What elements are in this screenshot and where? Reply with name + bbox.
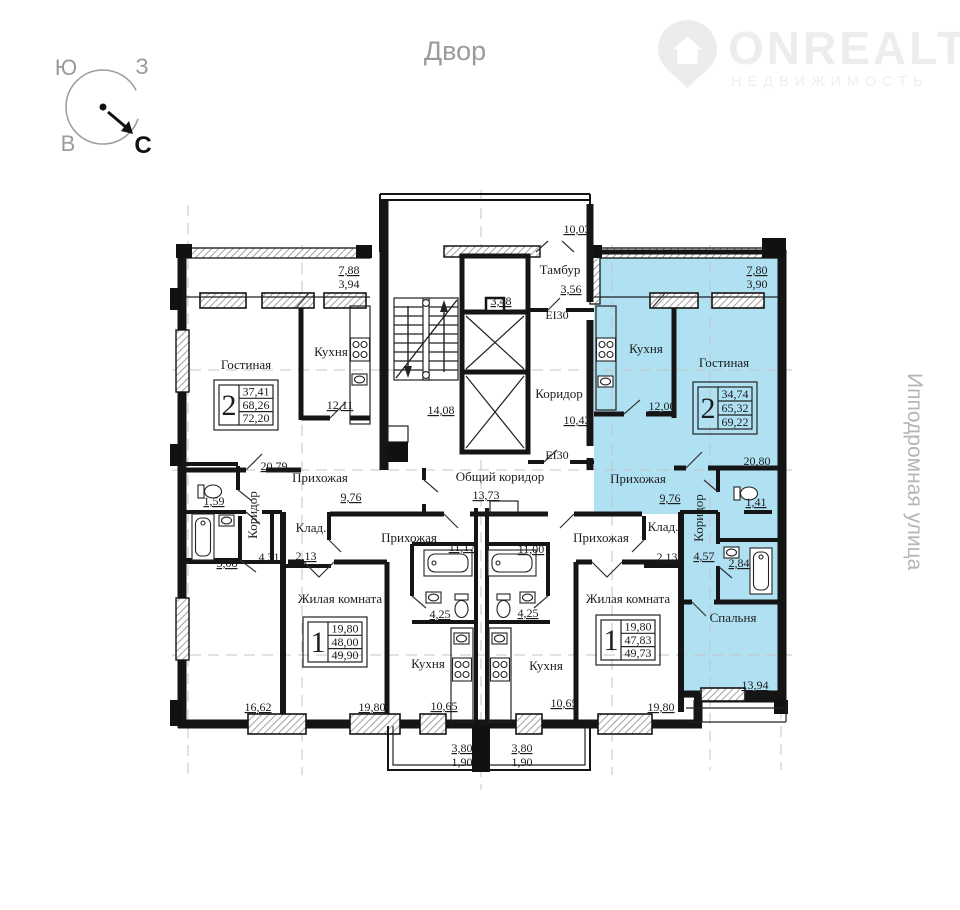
left2-balcony-half: 3,94: [339, 277, 360, 291]
left2-hall-label: Прихожая: [292, 470, 348, 485]
right2-area-total: 69,22: [722, 415, 749, 429]
right1-storage-label: Клад.: [648, 519, 679, 534]
right1-kitchen-dim: 10,65: [551, 696, 578, 710]
tambour-label: Тамбур: [540, 262, 581, 277]
right1-kitchen-label: Кухня: [529, 658, 563, 673]
left1-storage-dim: 2,13: [296, 549, 317, 563]
right1-balcony-full: 3,80: [512, 741, 533, 755]
left1-rooms-count: 1: [311, 626, 326, 659]
left1-area-living: 19,80: [332, 622, 359, 636]
left2-bedroom-dim: 16,62: [245, 700, 272, 714]
left1-hall-label: Прихожая: [381, 530, 437, 545]
right1-area-usable: 47,83: [625, 633, 652, 647]
right2-bedroom-dim: 13,94: [742, 678, 769, 692]
right2-corridor-dim: 4,57: [694, 549, 715, 563]
courtyard-label: Двор: [424, 36, 486, 66]
garbage-chute: [388, 426, 408, 462]
left1-area-total: 49,90: [332, 648, 359, 662]
left2-kitchen-dim: 12,11: [327, 398, 354, 412]
right2-living-dim: 20,80: [744, 454, 771, 468]
right1-balcony-half: 1,90: [512, 755, 533, 769]
left2-area-usable: 68,26: [243, 398, 270, 412]
compass-east: В: [61, 131, 76, 156]
right1-hall-dim: 11,00: [518, 542, 545, 556]
left1-room-label: Жилая комната: [298, 591, 382, 606]
area-table-left2: 2 37,41 68,26 72,20: [214, 380, 278, 430]
street-label: Ипподромная улица: [903, 373, 926, 571]
fire-door-bottom-label: EI30: [545, 448, 568, 462]
left1-kitchen-dim: 10,65: [431, 699, 458, 713]
compass-north: С: [134, 132, 151, 159]
logo-subtitle: НЕДВИЖИМОСТЬ: [731, 74, 929, 90]
right2-hall-label: Прихожая: [610, 471, 666, 486]
left1-room-dim: 19,80: [359, 700, 386, 714]
left1-bath-dim: 4,25: [430, 607, 451, 621]
fire-door-top-label: EI30: [545, 308, 568, 322]
compass: Ю З В С: [55, 54, 152, 159]
stair-hall-dim: 14,08: [428, 403, 455, 417]
left2-area-living: 37,41: [243, 385, 270, 399]
right1-bath-dim: 4,25: [518, 606, 539, 620]
common-corridor-label: Общий коридор: [456, 469, 544, 484]
corridor-dim: 10,43: [564, 413, 591, 427]
compass-south: Ю: [55, 55, 77, 80]
right2-corridor-label: Коридор: [691, 494, 706, 542]
left1-balcony-full: 3,80: [452, 741, 473, 755]
common-corridor-dim: 13,73: [473, 488, 500, 502]
tambour-dim: 3,56: [561, 282, 582, 296]
right1-area-living: 19,80: [625, 620, 652, 634]
left2-corridor-dim: 4,31: [259, 550, 280, 564]
floorplan-page: 2 37,41 68,26 72,20 2 34,74 65,32 69,22 …: [0, 0, 960, 910]
right2-bath-dim: 2,84: [729, 556, 750, 570]
right2-kitchen-label: Кухня: [629, 341, 663, 356]
left2-kitchen-label: Кухня: [314, 344, 348, 359]
right2-wc-dim: 1,41: [746, 495, 767, 509]
compass-west: З: [135, 54, 148, 79]
elevator-shafts: [462, 256, 528, 452]
compass-dot: [100, 104, 107, 111]
left2-corridor-label: Коридор: [245, 491, 260, 539]
logo-pin-icon: [658, 20, 717, 88]
right2-living-label: Гостиная: [699, 355, 749, 370]
right1-rooms-count: 1: [604, 624, 619, 657]
right1-room-label: Жилая комната: [586, 591, 670, 606]
right2-area-living: 34,74: [722, 387, 749, 401]
left2-living-label: Гостиная: [221, 357, 271, 372]
area-table-left1: 1 19,80 48,00 49,90: [303, 617, 367, 667]
logo-brand: ONREALT: [728, 22, 960, 74]
left2-wc-dim: 1,59: [204, 494, 225, 508]
right1-hall-label: Прихожая: [573, 530, 629, 545]
entry-dim: 10,03: [564, 222, 591, 236]
lift-lobby-dim: 3,48: [491, 294, 512, 308]
left2-living-dim: 20,79: [261, 459, 288, 473]
left2-hall-dim: 9,76: [341, 490, 362, 504]
left2-bath-dim: 3,08: [217, 556, 238, 570]
right1-room-dim: 19,80: [648, 700, 675, 714]
compass-arrow: [108, 112, 127, 128]
onrealt-logo: ONREALT НЕДВИЖИМОСТЬ: [658, 20, 960, 90]
left1-storage-label: Клад.: [296, 520, 327, 535]
right2-kitchen-dim: 12,00: [649, 399, 676, 413]
area-table-right1: 1 19,80 47,83 49,73: [596, 615, 660, 665]
right2-bedroom-label: Спальня: [710, 610, 757, 625]
right2-hall-dim: 9,76: [660, 491, 681, 505]
stairs: [394, 298, 458, 380]
right1-area-total: 49,73: [625, 646, 652, 660]
right2-balcony-half: 3,90: [747, 277, 768, 291]
right2-area-usable: 65,32: [722, 401, 749, 415]
right2-balcony-full: 7,80: [747, 263, 768, 277]
right2-rooms-count: 2: [701, 392, 716, 425]
left1-area-usable: 48,00: [332, 635, 359, 649]
corridor-label: Коридор: [535, 386, 583, 401]
left1-hall-dim: 11,17: [449, 540, 476, 554]
left2-balcony-full: 7,88: [339, 263, 360, 277]
left1-balcony-half: 1,90: [452, 755, 473, 769]
left2-rooms-count: 2: [222, 389, 237, 422]
left1-kitchen-label: Кухня: [411, 656, 445, 671]
right1-storage-dim: 2,13: [657, 550, 678, 564]
left2-area-total: 72,20: [243, 411, 270, 425]
floorplan-canvas: 2 37,41 68,26 72,20 2 34,74 65,32 69,22 …: [0, 0, 960, 910]
